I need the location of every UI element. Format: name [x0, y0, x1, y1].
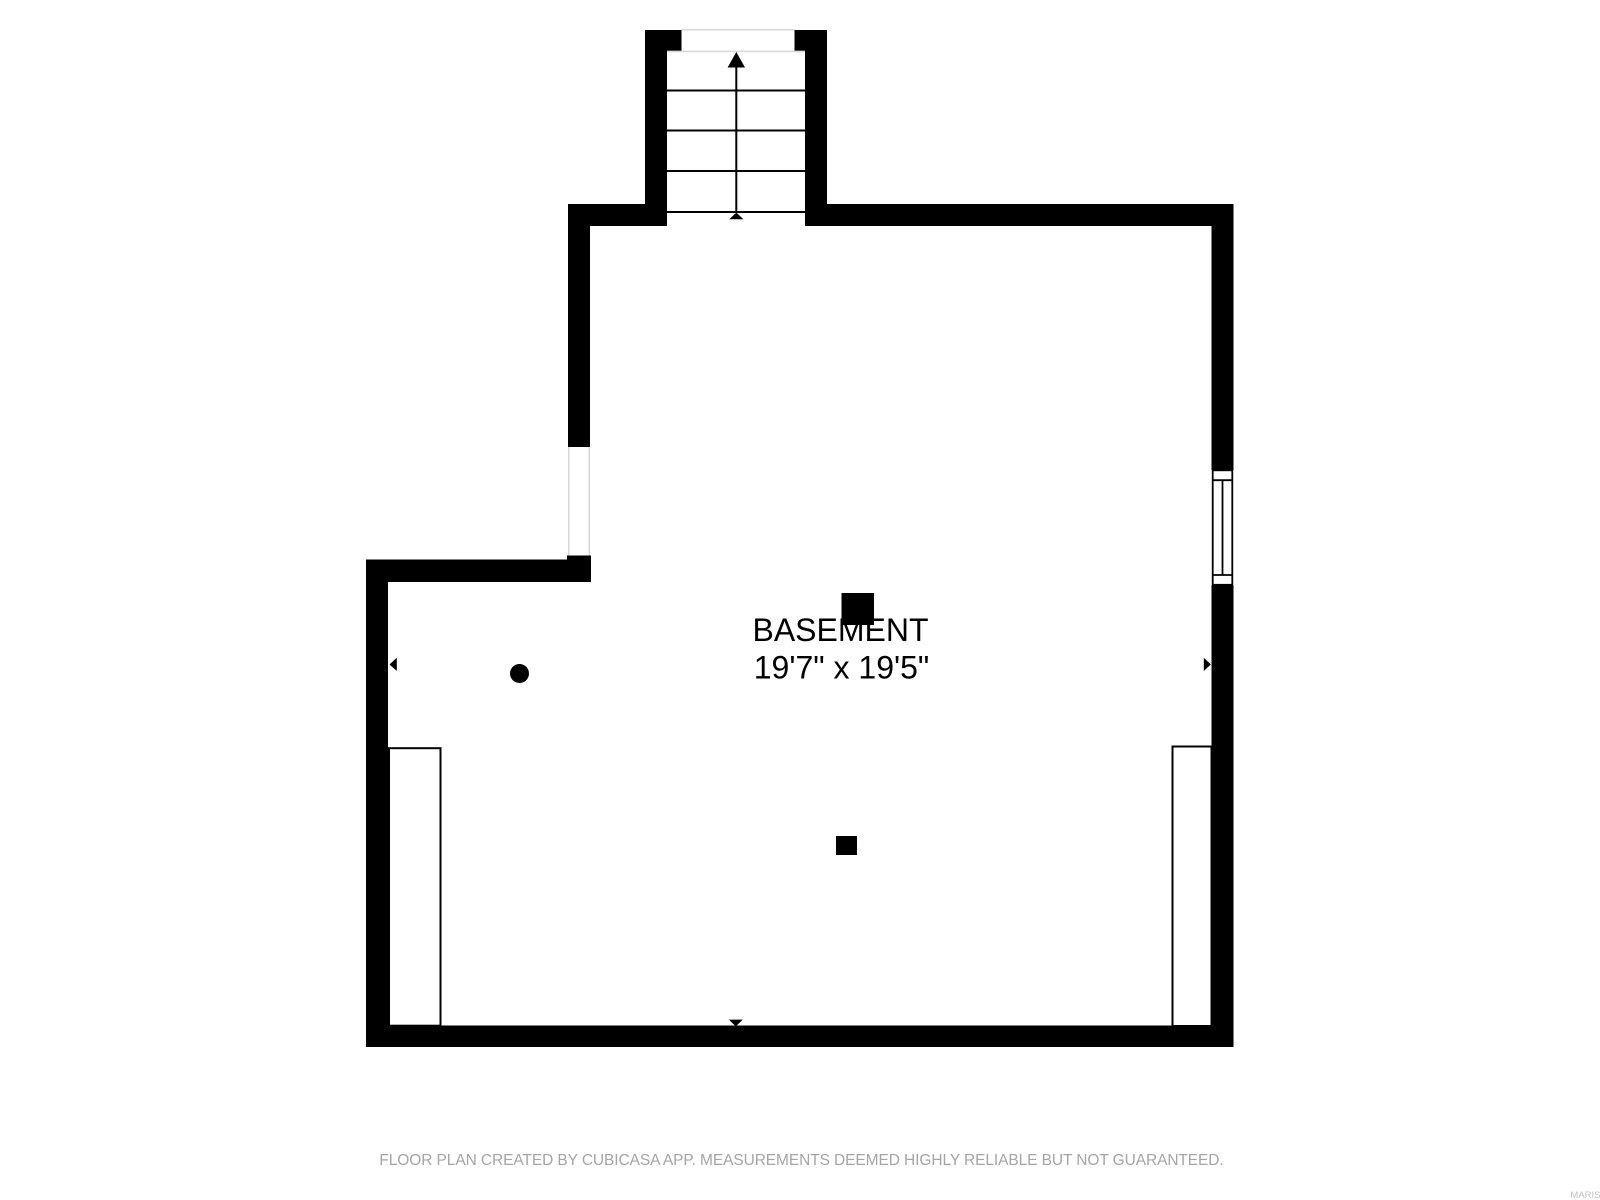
svg-text:BASEMENT: BASEMENT [752, 612, 928, 648]
svg-text:19'7" x 19'5": 19'7" x 19'5" [754, 650, 930, 686]
svg-text:MARIS: MARIS [1570, 1190, 1600, 1200]
svg-text:FLOOR PLAN CREATED BY CUBICASA: FLOOR PLAN CREATED BY CUBICASA APP. MEAS… [379, 1152, 1223, 1169]
